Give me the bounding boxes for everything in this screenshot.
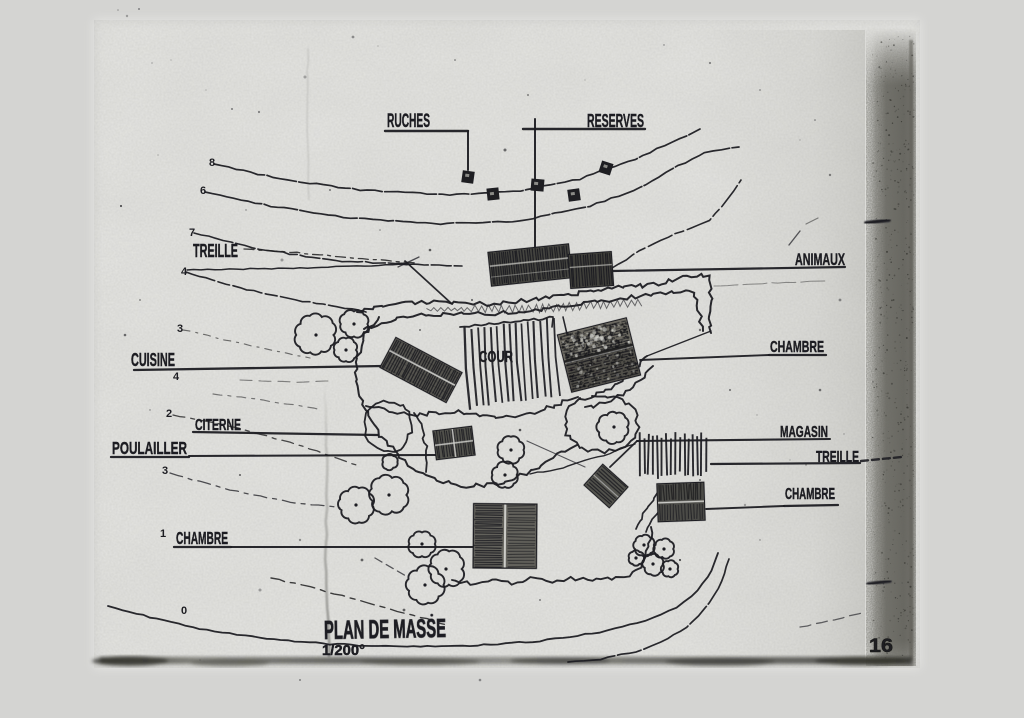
svg-text:3: 3: [162, 465, 168, 477]
svg-text:POULAILLER: POULAILLER: [112, 438, 187, 458]
svg-text:3: 3: [177, 323, 183, 335]
svg-text:8: 8: [209, 157, 215, 169]
svg-text:16: 16: [869, 636, 893, 657]
svg-text:TREILLE: TREILLE: [193, 241, 238, 261]
svg-text:RUCHES: RUCHES: [387, 111, 430, 132]
svg-text:COUR: COUR: [479, 349, 513, 366]
svg-text:2: 2: [166, 408, 172, 420]
svg-text:6: 6: [200, 185, 206, 197]
svg-text:4: 4: [173, 371, 180, 383]
svg-text:0: 0: [181, 605, 187, 617]
svg-text:CUISINE: CUISINE: [131, 350, 175, 370]
svg-text:4: 4: [181, 266, 188, 278]
svg-text:PLAN DE MASSE: PLAN DE MASSE: [324, 613, 447, 645]
svg-text:CHAMBRE: CHAMBRE: [770, 339, 824, 356]
svg-text:CHAMBRE: CHAMBRE: [176, 528, 228, 548]
svg-text:1/200°: 1/200°: [322, 642, 365, 659]
svg-text:CHAMBRE: CHAMBRE: [785, 486, 835, 503]
svg-text:1: 1: [160, 528, 166, 540]
svg-text:7: 7: [189, 227, 195, 239]
